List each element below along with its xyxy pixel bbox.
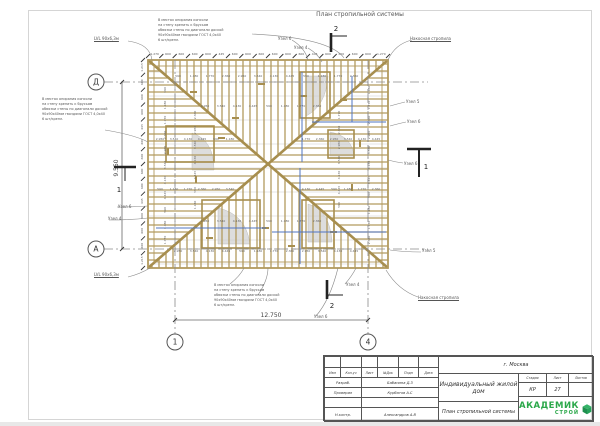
svg-text:2.360: 2.360 [222, 74, 231, 78]
svg-text:4.445: 4.445 [163, 191, 167, 200]
page-shadow [0, 422, 600, 426]
titleblock-sheet-value: 27 [546, 382, 569, 397]
svg-text:1.215: 1.215 [140, 256, 144, 265]
svg-text:600: 600 [298, 52, 304, 56]
svg-text:3.540: 3.540 [344, 137, 353, 141]
svg-text:600: 600 [165, 52, 171, 56]
svg-text:2.950: 2.950 [201, 219, 210, 223]
svg-text:1.770: 1.770 [358, 187, 367, 191]
svg-text:4.130: 4.130 [206, 249, 215, 253]
svg-text:2.950: 2.950 [212, 187, 221, 191]
svg-text:12.750: 12.750 [261, 312, 282, 319]
svg-text:4.130: 4.130 [334, 249, 343, 253]
svg-text:1.270: 1.270 [150, 52, 159, 56]
svg-text:3.540: 3.540 [163, 161, 167, 170]
svg-text:590: 590 [175, 74, 181, 78]
svg-text:4.130: 4.130 [358, 137, 367, 141]
svg-text:445: 445 [140, 198, 144, 204]
svg-text:2.950: 2.950 [330, 137, 339, 141]
construction-note-bottom: В местах опирания консолина стену крепит… [214, 283, 310, 309]
svg-text:590: 590 [367, 192, 371, 198]
svg-text:4.130: 4.130 [270, 74, 279, 78]
svg-text:600: 600 [140, 79, 144, 85]
svg-text:445: 445 [140, 124, 144, 130]
svg-text:590: 590 [163, 87, 167, 93]
svg-text:2.360: 2.360 [193, 111, 197, 120]
svg-text:2.360: 2.360 [367, 116, 371, 125]
titleblock-city: г. Москва [438, 356, 594, 374]
svg-text:1.180: 1.180 [226, 137, 235, 141]
svg-text:4.130: 4.130 [337, 171, 341, 180]
svg-text:600: 600 [140, 183, 144, 189]
svg-text:1.770: 1.770 [163, 116, 167, 125]
svg-text:600: 600 [140, 168, 144, 174]
svg-text:590: 590 [266, 104, 272, 108]
svg-text:1.770: 1.770 [337, 111, 341, 120]
svg-text:2.360: 2.360 [367, 236, 371, 245]
titleblock-role: Н.контр. [324, 407, 362, 422]
node-callout-label: Узел 4 [108, 216, 121, 221]
svg-text:1.180: 1.180 [344, 187, 353, 191]
svg-text:600: 600 [205, 52, 211, 56]
svg-text:4.445: 4.445 [316, 187, 325, 191]
svg-text:590: 590 [303, 74, 309, 78]
svg-text:2.360: 2.360 [313, 219, 322, 223]
construction-note-top: В местах опирания консолина стену крепит… [158, 18, 254, 44]
svg-text:1.180: 1.180 [254, 249, 263, 253]
svg-text:1.180: 1.180 [193, 201, 197, 210]
svg-text:1.215: 1.215 [140, 63, 144, 72]
svg-text:600: 600 [325, 52, 331, 56]
svg-text:4.130: 4.130 [163, 176, 167, 185]
node-callout-label: Узел 6 [314, 314, 327, 319]
svg-text:1: 1 [173, 338, 178, 347]
note-line: 6 шт/крепл. [42, 117, 134, 122]
svg-text:600: 600 [245, 52, 251, 56]
svg-text:1.770: 1.770 [334, 74, 343, 78]
svg-text:600: 600 [140, 154, 144, 160]
svg-text:4.130: 4.130 [233, 104, 242, 108]
svg-text:4.130: 4.130 [184, 137, 193, 141]
svg-text:1.180: 1.180 [367, 86, 371, 95]
svg-text:4.130: 4.130 [302, 187, 311, 191]
svg-text:445: 445 [218, 52, 224, 56]
svg-text:4.445: 4.445 [249, 219, 258, 223]
svg-text:3.540: 3.540 [193, 141, 197, 150]
node-callout-label: Узел 6 [404, 161, 417, 166]
svg-text:2.950: 2.950 [302, 249, 311, 253]
svg-text:1.770: 1.770 [297, 219, 306, 223]
svg-text:1: 1 [117, 186, 121, 194]
svg-text:2.950: 2.950 [201, 104, 210, 108]
svg-text:600: 600 [140, 213, 144, 219]
svg-text:2: 2 [330, 302, 334, 310]
svg-text:2.360: 2.360 [372, 187, 381, 191]
svg-text:600: 600 [232, 52, 238, 56]
svg-text:590: 590 [337, 202, 341, 208]
svg-text:600: 600 [338, 52, 344, 56]
svg-text:2.360: 2.360 [313, 104, 322, 108]
svg-text:4.445: 4.445 [249, 104, 258, 108]
svg-text:1.770: 1.770 [302, 137, 311, 141]
svg-text:2.360: 2.360 [350, 74, 359, 78]
svg-text:3.540: 3.540 [337, 156, 341, 165]
svg-text:4.445: 4.445 [350, 249, 359, 253]
title-block: Изм Кол.уч Лист №Док Подп Дата Разраб. Б… [323, 355, 593, 421]
svg-text:590: 590 [163, 207, 167, 213]
node-callout-label: Узел 4 [346, 282, 359, 287]
svg-text:2.950: 2.950 [337, 141, 341, 150]
svg-text:1.770: 1.770 [163, 236, 167, 245]
svg-text:600: 600 [192, 52, 198, 56]
svg-text:2.360: 2.360 [337, 126, 341, 135]
node-callout-label: Узел 6 [278, 36, 291, 41]
svg-text:3.540: 3.540 [254, 74, 263, 78]
company-logo-text: АКАДЕМИК СТРОЙ [519, 402, 579, 416]
note-line: 6 шт/крепл. [214, 303, 310, 308]
node-callout-label: Накосная стропила [410, 36, 451, 41]
titleblock-sheet-title: План стропильной системы [438, 401, 519, 422]
svg-text:4.445: 4.445 [367, 176, 371, 185]
svg-text:2.360: 2.360 [316, 137, 325, 141]
svg-text:3.540: 3.540 [367, 146, 371, 155]
node-callout-label: Узел 6 [407, 119, 420, 124]
svg-text:3.540: 3.540 [170, 137, 179, 141]
svg-text:3.540: 3.540 [217, 104, 226, 108]
svg-text:1.770: 1.770 [367, 221, 371, 230]
titleblock-name: Александров А.В [361, 407, 439, 422]
svg-text:1.180: 1.180 [163, 221, 167, 230]
node-callout-label: Узел 5 [422, 248, 435, 253]
svg-text:2.360: 2.360 [163, 131, 167, 140]
svg-text:600: 600 [178, 52, 184, 56]
svg-text:1.270: 1.270 [377, 52, 386, 56]
svg-text:2.360: 2.360 [198, 187, 207, 191]
node-callout-label: Узел 6 [118, 204, 131, 209]
svg-text:600: 600 [258, 52, 264, 56]
svg-text:2.950: 2.950 [193, 126, 197, 135]
svg-text:2.950: 2.950 [163, 146, 167, 155]
svg-text:4.445: 4.445 [193, 171, 197, 180]
node-callout-label: Узел 5 [406, 99, 419, 104]
svg-text:600: 600 [365, 52, 371, 56]
svg-text:2: 2 [334, 25, 338, 33]
svg-text:2.950: 2.950 [238, 74, 247, 78]
svg-text:1.770: 1.770 [184, 187, 193, 191]
svg-text:1.770: 1.770 [297, 104, 306, 108]
titleblock-project: Индивидуальный жилой дом [438, 373, 519, 402]
svg-text:1.180: 1.180 [281, 219, 290, 223]
node-callout-label: LVL 90х6,3м [94, 272, 119, 277]
svg-text:А: А [93, 245, 99, 254]
node-callout-label: Накосная стропила [418, 295, 459, 300]
svg-text:600: 600 [140, 243, 144, 249]
svg-text:Д: Д [93, 78, 99, 87]
svg-text:590: 590 [157, 187, 163, 191]
svg-text:2.950: 2.950 [367, 131, 371, 140]
svg-text:600: 600 [140, 109, 144, 115]
node-callout-label: Узел 4 [294, 45, 307, 50]
svg-text:600: 600 [352, 52, 358, 56]
svg-text:1.770: 1.770 [367, 101, 371, 110]
svg-text:1.180: 1.180 [367, 206, 371, 215]
svg-text:3.540: 3.540 [318, 249, 327, 253]
svg-text:2.950: 2.950 [174, 249, 183, 253]
svg-text:600: 600 [285, 52, 291, 56]
svg-text:4: 4 [366, 338, 371, 347]
logo-subname: СТРОЙ [555, 411, 579, 416]
svg-text:4.130: 4.130 [367, 161, 371, 170]
svg-text:3.540: 3.540 [217, 219, 226, 223]
svg-text:4.445: 4.445 [198, 137, 207, 141]
svg-text:600: 600 [140, 228, 144, 234]
svg-text:1.180: 1.180 [163, 101, 167, 110]
svg-text:590: 590 [239, 249, 245, 253]
company-logo: АКАДЕМИК СТРОЙ [518, 396, 594, 422]
svg-text:1.180: 1.180 [281, 104, 290, 108]
svg-text:590: 590 [213, 137, 219, 141]
titleblock-sheets-value [568, 382, 594, 397]
svg-text:1.180: 1.180 [190, 74, 199, 78]
svg-text:590: 590 [193, 187, 197, 193]
construction-note-left: В местах опирания консолина стену крепит… [42, 97, 134, 123]
svg-text:4.445: 4.445 [222, 249, 231, 253]
svg-text:4.445: 4.445 [337, 186, 341, 195]
svg-text:1.180: 1.180 [170, 187, 179, 191]
svg-text:1: 1 [424, 163, 428, 171]
svg-text:4.445: 4.445 [372, 137, 381, 141]
svg-text:1.770: 1.770 [270, 249, 279, 253]
svg-text:1.770: 1.770 [206, 74, 215, 78]
node-callout-label: LVL 90х6,3м [94, 36, 119, 41]
note-line: 6 шт/крепл. [158, 38, 254, 43]
svg-text:4.445: 4.445 [286, 74, 295, 78]
svg-text:600: 600 [272, 52, 278, 56]
svg-text:600: 600 [140, 94, 144, 100]
svg-text:1.180: 1.180 [318, 74, 327, 78]
svg-text:4.130: 4.130 [193, 156, 197, 165]
drawing-sheet: План стропильной системы 9.55012.7501.27… [0, 0, 600, 426]
svg-text:3.540: 3.540 [226, 187, 235, 191]
svg-text:3.540: 3.540 [190, 249, 199, 253]
titleblock-stage-value: КР [518, 382, 547, 397]
svg-text:2.360: 2.360 [286, 249, 295, 253]
svg-text:590: 590 [266, 219, 272, 223]
logo-cube-icon [581, 401, 593, 417]
svg-text:4.130: 4.130 [233, 219, 242, 223]
